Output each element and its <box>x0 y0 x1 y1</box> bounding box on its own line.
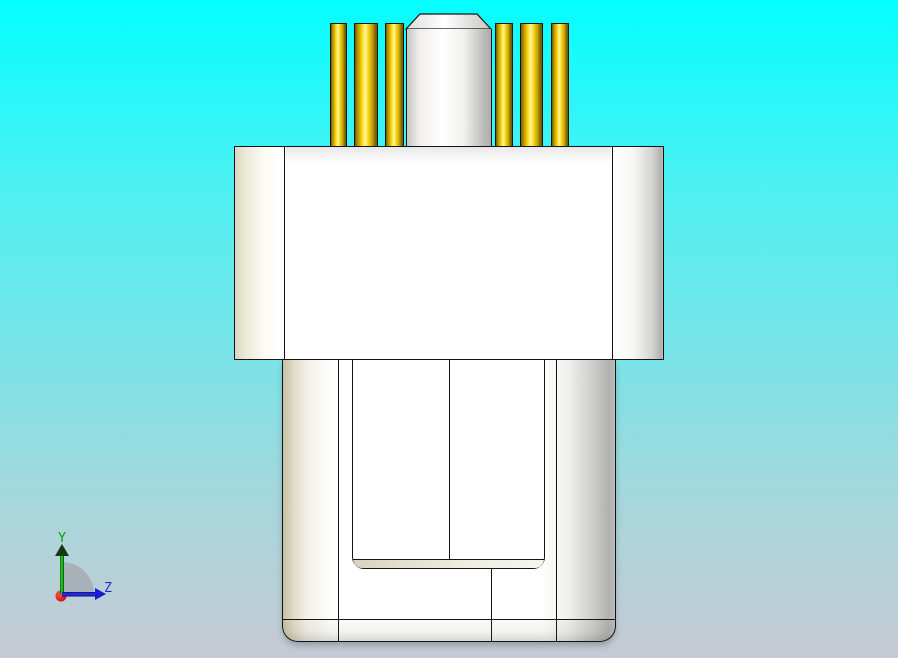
upper-housing-left-flange <box>235 147 285 359</box>
latch-recess[interactable] <box>352 360 545 569</box>
lower-housing-edge-line-left <box>338 360 339 641</box>
upper-housing[interactable] <box>234 146 664 360</box>
axis-arc-sector <box>62 562 94 594</box>
latch-center-seam <box>449 360 450 568</box>
connector-pin[interactable] <box>354 23 378 147</box>
latch-bottom-face <box>353 559 544 568</box>
y-axis-label: Y <box>58 531 66 546</box>
upper-housing-right-flange <box>612 147 663 359</box>
front-face-top-shadow <box>286 147 611 163</box>
connector-pin[interactable] <box>551 23 569 147</box>
center-post[interactable] <box>406 29 492 147</box>
z-axis-label: Z <box>104 581 112 596</box>
cad-viewport[interactable]: Y Z <box>0 0 898 658</box>
bottom-band-shading <box>283 620 615 641</box>
connector-pin[interactable] <box>330 23 347 147</box>
connector-pin[interactable] <box>495 23 513 147</box>
post-chamfer-top[interactable] <box>405 13 493 30</box>
lower-housing-edge-line-right <box>556 360 557 641</box>
lower-housing[interactable] <box>282 360 616 642</box>
post-chamfer-face <box>406 14 491 29</box>
upper-housing-front-face <box>286 147 611 359</box>
z-axis-shaft <box>62 592 96 597</box>
axis-triad: Y Z <box>34 524 118 610</box>
connector-pin[interactable] <box>385 23 404 147</box>
y-axis-shaft <box>60 555 64 594</box>
connector-pin[interactable] <box>520 23 543 147</box>
